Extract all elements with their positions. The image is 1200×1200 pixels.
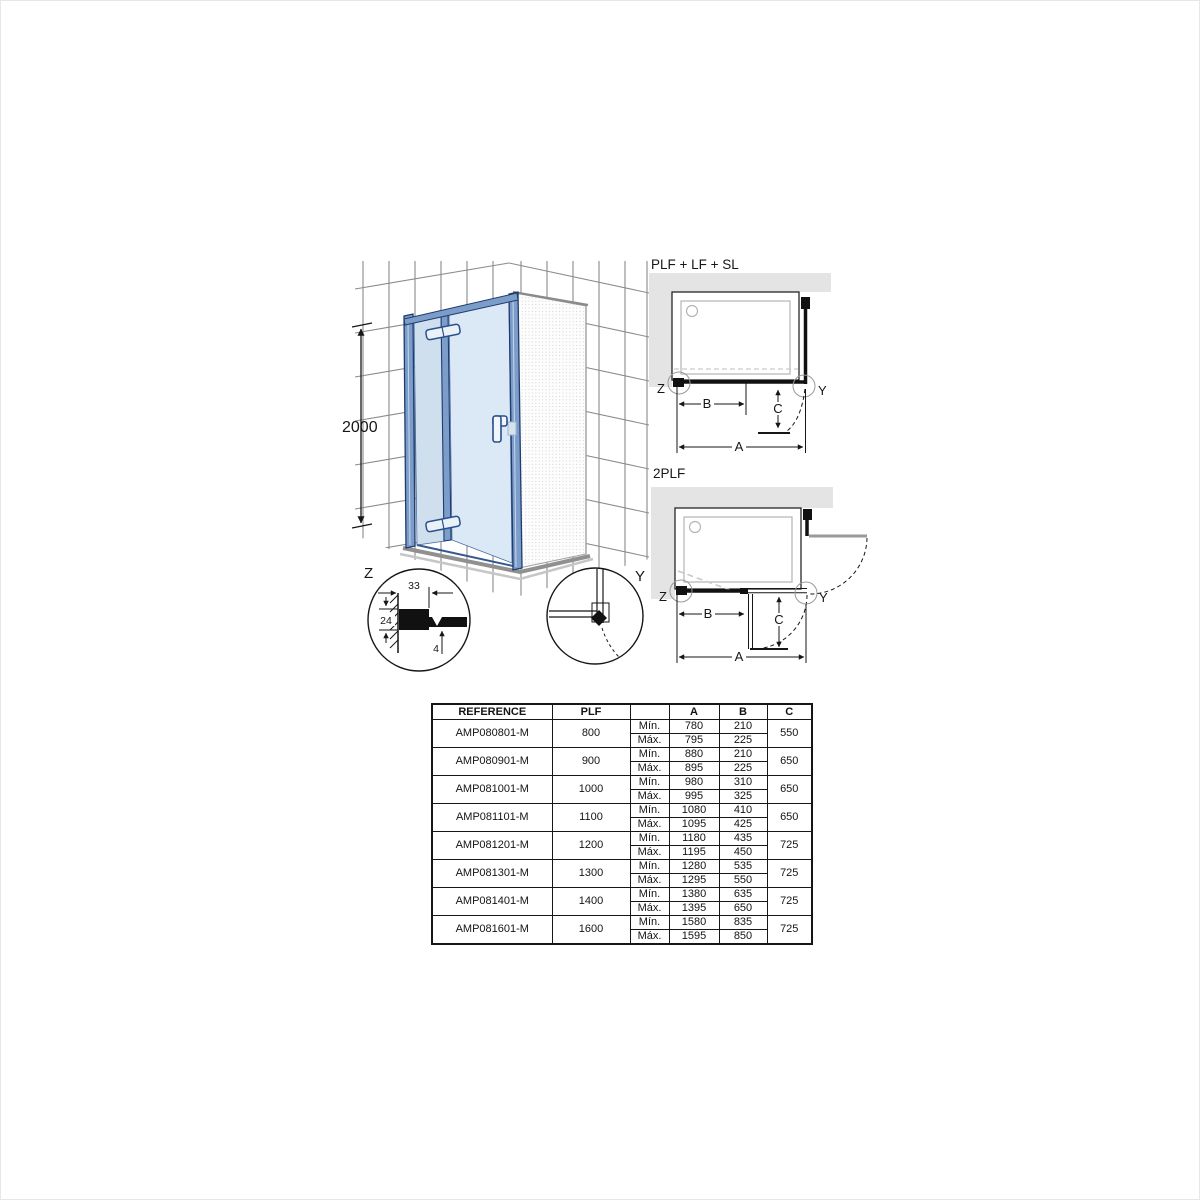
cell-b-max: 225 [719,762,767,776]
cell-b-max: 225 [719,734,767,748]
detail-circle-z: Z 33 24 4 [364,565,470,671]
cell-c: 725 [767,888,812,916]
y-profile [801,297,810,309]
cell-max-label: Máx. [630,762,669,776]
cell-max-label: Máx. [630,930,669,945]
cell-reference: AMP080901-M [432,748,552,776]
dimension-a-top: A [679,389,806,454]
cell-max-label: Máx. [630,846,669,860]
detail-z-dim-height: 24 [380,615,392,627]
cell-reference: AMP081001-M [432,776,552,804]
cell-a-min: 1580 [669,916,719,930]
header-plf: PLF [552,704,630,720]
cell-reference: AMP081101-M [432,804,552,832]
detail-circle-y: Y [547,568,645,664]
cell-a-max: 1095 [669,818,719,832]
cell-b-min: 210 [719,720,767,734]
cell-plf: 1000 [552,776,630,804]
cell-min-label: Mín. [630,832,669,846]
table-row-group: AMP081601-M 1600 Mín. 1580 835 725 Máx. … [432,916,812,945]
cell-b-max: 325 [719,790,767,804]
svg-text:C: C [773,401,782,416]
cell-a-min: 980 [669,776,719,790]
svg-text:C: C [774,612,783,627]
cell-a-min: 880 [669,748,719,762]
cell-b-min: 410 [719,804,767,818]
plan-bottom-label-z: Z [659,589,667,604]
z-profile [676,586,687,595]
cell-a-max: 1595 [669,930,719,945]
table-row: AMP081001-M 1000 Mín. 980 310 650 [432,776,812,790]
cell-min-label: Mín. [630,860,669,874]
detail-z-dim-glass: 4 [433,643,439,655]
table-row-group: AMP081301-M 1300 Mín. 1280 535 725 Máx. … [432,860,812,888]
table-row-group: AMP080901-M 900 Mín. 880 210 650 Máx. 89… [432,748,812,776]
cell-a-max: 1195 [669,846,719,860]
cell-a-min: 1280 [669,860,719,874]
table-row-group: AMP080801-M 800 Mín. 780 210 550 Máx. 79… [432,720,812,748]
plan-top-label-z: Z [657,381,665,396]
cell-a-min: 1180 [669,832,719,846]
cell-a-max: 895 [669,762,719,776]
header-a: A [669,704,719,720]
cell-b-min: 535 [719,860,767,874]
cell-a-min: 780 [669,720,719,734]
side-panel [513,292,588,568]
header-c: C [767,704,812,720]
table-row-group: AMP081101-M 1100 Mín. 1080 410 650 Máx. … [432,804,812,832]
height-dimension-label: 2000 [342,419,378,436]
table-row-group: AMP081201-M 1200 Mín. 1180 435 725 Máx. … [432,832,812,860]
cell-max-label: Máx. [630,874,669,888]
cell-plf: 800 [552,720,630,748]
cell-c: 650 [767,748,812,776]
plan-bottom-label-y: Y [819,590,828,605]
cell-b-max: 450 [719,846,767,860]
dimension-a-bottom: A [679,604,806,664]
door-swing-arc-right [810,538,867,594]
table-row: AMP081301-M 1300 Mín. 1280 535 725 [432,860,812,874]
cell-plf: 1600 [552,916,630,945]
header-b: B [719,704,767,720]
cell-reference: AMP081401-M [432,888,552,916]
cell-c: 650 [767,804,812,832]
detail-y-label: Y [635,568,645,585]
cell-b-min: 835 [719,916,767,930]
cell-min-label: Mín. [630,720,669,734]
cell-a-min: 1380 [669,888,719,902]
table-row: AMP080801-M 800 Mín. 780 210 550 [432,720,812,734]
door-swing-arc [787,389,805,431]
cell-min-label: Mín. [630,888,669,902]
wall-profile-section [399,609,429,630]
cell-min-label: Mín. [630,804,669,818]
cell-a-max: 795 [669,734,719,748]
plan-top-label-y: Y [818,383,827,398]
header-minmax [630,704,669,720]
plan-diagram-top: PLF + LF + SL Z Y B C [649,257,831,454]
technical-drawing: 2000 Z 33 24 [1,1,1200,1200]
cell-a-min: 1080 [669,804,719,818]
plan-top-title: PLF + LF + SL [651,257,739,272]
cell-min-label: Mín. [630,916,669,930]
cell-plf: 1200 [552,832,630,860]
cell-max-label: Máx. [630,790,669,804]
cell-b-max: 850 [719,930,767,945]
cell-b-min: 635 [719,888,767,902]
cell-b-max: 650 [719,902,767,916]
cell-c: 725 [767,916,812,945]
cell-b-max: 550 [719,874,767,888]
detail-z-dim-width: 33 [408,580,420,592]
z-profile [673,378,684,387]
cell-min-label: Mín. [630,748,669,762]
table-row: AMP081401-M 1400 Mín. 1380 635 725 [432,888,812,902]
table-row: AMP081101-M 1100 Mín. 1080 410 650 [432,804,812,818]
cell-b-min: 310 [719,776,767,790]
table-row-group: AMP081401-M 1400 Mín. 1380 635 725 Máx. … [432,888,812,916]
cell-reference: AMP081301-M [432,860,552,888]
cell-b-min: 210 [719,748,767,762]
cell-a-max: 1295 [669,874,719,888]
isometric-view: 2000 Z 33 24 [342,259,649,671]
cell-plf: 1100 [552,804,630,832]
table-row: AMP081201-M 1200 Mín. 1180 435 725 [432,832,812,846]
cell-b-max: 425 [719,818,767,832]
spec-table: REFERENCE PLF A B C AMP080801-M 800 Mín.… [431,703,813,945]
cell-c: 650 [767,776,812,804]
cell-a-max: 1395 [669,902,719,916]
spec-sheet-page: 2000 Z 33 24 [0,0,1200,1200]
cell-min-label: Mín. [630,776,669,790]
plan-diagram-bottom: 2PLF Z Y B C [651,466,867,664]
svg-text:B: B [704,606,713,621]
cell-max-label: Máx. [630,734,669,748]
svg-text:A: A [735,649,744,664]
header-reference: REFERENCE [432,704,552,720]
plan-bottom-title: 2PLF [653,466,685,481]
cell-max-label: Máx. [630,818,669,832]
cell-b-min: 435 [719,832,767,846]
cell-c: 550 [767,720,812,748]
table-row: AMP081601-M 1600 Mín. 1580 835 725 [432,916,812,930]
cell-plf: 1300 [552,860,630,888]
cell-reference: AMP081601-M [432,916,552,945]
table-row: AMP080901-M 900 Mín. 880 210 650 [432,748,812,762]
cell-c: 725 [767,832,812,860]
dimension-c-top: C [771,390,785,428]
y-profile [803,509,812,520]
cell-reference: AMP081201-M [432,832,552,860]
cell-a-max: 995 [669,790,719,804]
cell-plf: 1400 [552,888,630,916]
svg-text:B: B [703,396,712,411]
fixed-glass-panel [414,313,445,545]
table-row-group: AMP081001-M 1000 Mín. 980 310 650 Máx. 9… [432,776,812,804]
svg-text:A: A [735,439,744,454]
detail-z-label: Z [364,565,373,582]
table-header-row: REFERENCE PLF A B C [432,704,812,720]
cell-max-label: Máx. [630,902,669,916]
height-dimension: 2000 [342,323,378,528]
cell-plf: 900 [552,748,630,776]
cell-c: 725 [767,860,812,888]
cell-reference: AMP080801-M [432,720,552,748]
